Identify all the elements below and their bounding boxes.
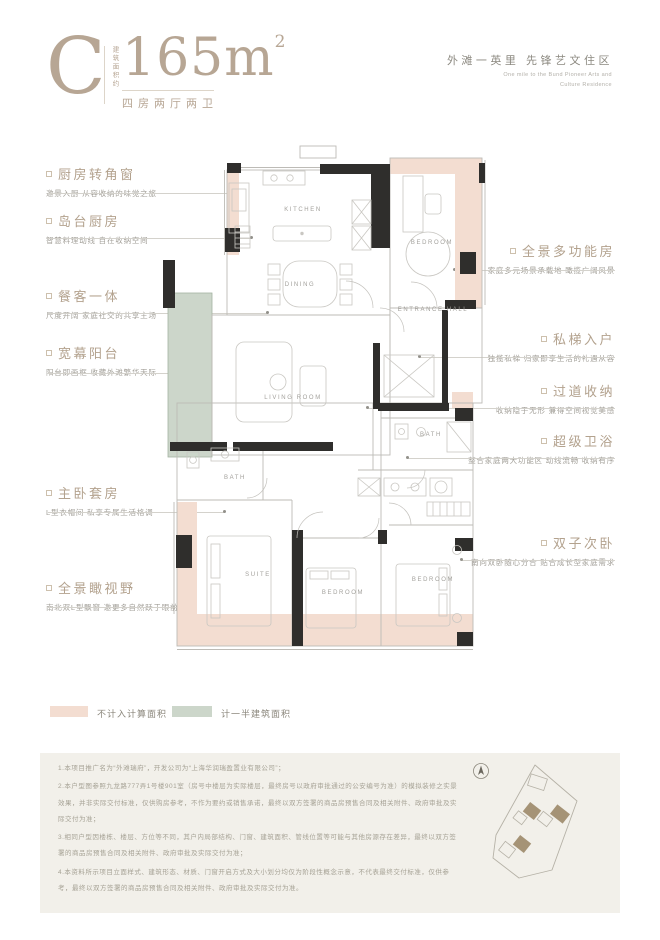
bullet-icon	[46, 218, 52, 224]
unit-type-letter: C	[46, 28, 106, 106]
bullet-icon	[46, 585, 52, 591]
room-label-kitchen: KITCHEN	[284, 207, 322, 213]
legend-label-pink: 不计入计算面积	[97, 707, 167, 720]
annotation-title: 私梯入户	[553, 333, 615, 348]
legend-swatch-pink	[50, 706, 88, 717]
bullet-icon	[510, 248, 516, 254]
annotation-title: 超级卫浴	[553, 435, 615, 450]
annotation-title: 宽幕阳台	[58, 347, 120, 362]
room-label-bedroom-top: BEDROOM	[411, 240, 453, 246]
legend-swatch-green	[172, 706, 212, 717]
disclaimer-p2: 2.本户型图参照九龙路777弄1号楼901室（房号中楼层为实际楼层，最终房号以政…	[58, 779, 460, 828]
disclaimer-p3: 3.相同户型因楼栋、楼层、方位等不同，其户内局部结构、门窗、建筑面积、管线位置等…	[58, 830, 460, 863]
area-sup: 2	[275, 32, 287, 52]
annotation-title: 餐客一体	[58, 290, 120, 305]
annotation-title: 岛台厨房	[58, 215, 120, 230]
annotation-title: 主卧套房	[58, 487, 120, 502]
zone-fills	[168, 158, 482, 646]
site-boundary	[493, 765, 577, 878]
bullet-icon	[541, 336, 547, 342]
room-label-bath-right: BATH	[420, 432, 442, 438]
site-plan	[465, 758, 615, 906]
annotation-title: 双子次卧	[553, 537, 615, 552]
project-tagline-cn: 外滩一英里 先锋艺文住区	[447, 52, 613, 68]
floor-plan	[163, 140, 493, 662]
disclaimer-text: 1.本项目推广名为“外滩瑞府”，开发公司为“上海华润瑞盈置业有限公司”； 2.本…	[58, 761, 460, 899]
room-label-bath-left: BATH	[224, 475, 246, 481]
bullet-icon	[541, 540, 547, 546]
north-compass-icon	[474, 764, 489, 779]
area-rule	[122, 90, 214, 91]
room-label-entrance-hall: ENTRANCE HALL	[398, 307, 468, 313]
disclaimer-box: 1.本项目推广名为“外滩瑞府”，开发公司为“上海华润瑞盈置业有限公司”； 2.本…	[40, 753, 620, 913]
structure-lines	[174, 146, 485, 650]
annotation-title: 全景瞰视野	[58, 582, 136, 597]
tagline-en-line1: One mile to the Bund Pioneer Arts and	[503, 70, 612, 80]
site-buildings	[499, 774, 570, 858]
layout-config-text: 四房两厅两卫	[122, 95, 218, 111]
room-label-suite: SUITE	[245, 572, 271, 578]
room-label-bedroom-right: BEDROOM	[412, 577, 454, 583]
header-divider	[104, 46, 105, 104]
area-note-vertical: 建筑面积约	[109, 46, 119, 89]
annotation-title: 厨房转角窗	[58, 168, 136, 183]
tagline-en-line2: Culture Residence	[503, 80, 612, 90]
legend-label-green: 计一半建筑面积	[221, 707, 291, 720]
bullet-icon	[541, 438, 547, 444]
bullet-icon	[46, 171, 52, 177]
room-label-living: LIVING ROOM	[264, 395, 322, 401]
site-plan-drawing	[465, 758, 615, 906]
project-tagline-en: One mile to the Bund Pioneer Arts and Cu…	[503, 70, 612, 91]
area-value: 165m2	[122, 32, 286, 84]
bullet-icon	[541, 388, 547, 394]
bullet-icon	[46, 293, 52, 299]
disclaimer-p4: 4.本资料所示项目立面样式、建筑形态、材质、门窗开启方式及大小划分均仅为阶段性概…	[58, 865, 460, 898]
bullet-icon	[46, 490, 52, 496]
room-label-bedroom-mid: BEDROOM	[322, 590, 364, 596]
annotation-title: 全景多功能房	[522, 245, 615, 260]
room-label-dining: DINING	[285, 282, 316, 288]
floor-plan-drawing	[163, 140, 493, 662]
bullet-icon	[46, 350, 52, 356]
annotation-title: 过道收纳	[553, 385, 615, 400]
disclaimer-p1: 1.本项目推广名为“外滩瑞府”，开发公司为“上海华润瑞盈置业有限公司”；	[58, 761, 460, 777]
